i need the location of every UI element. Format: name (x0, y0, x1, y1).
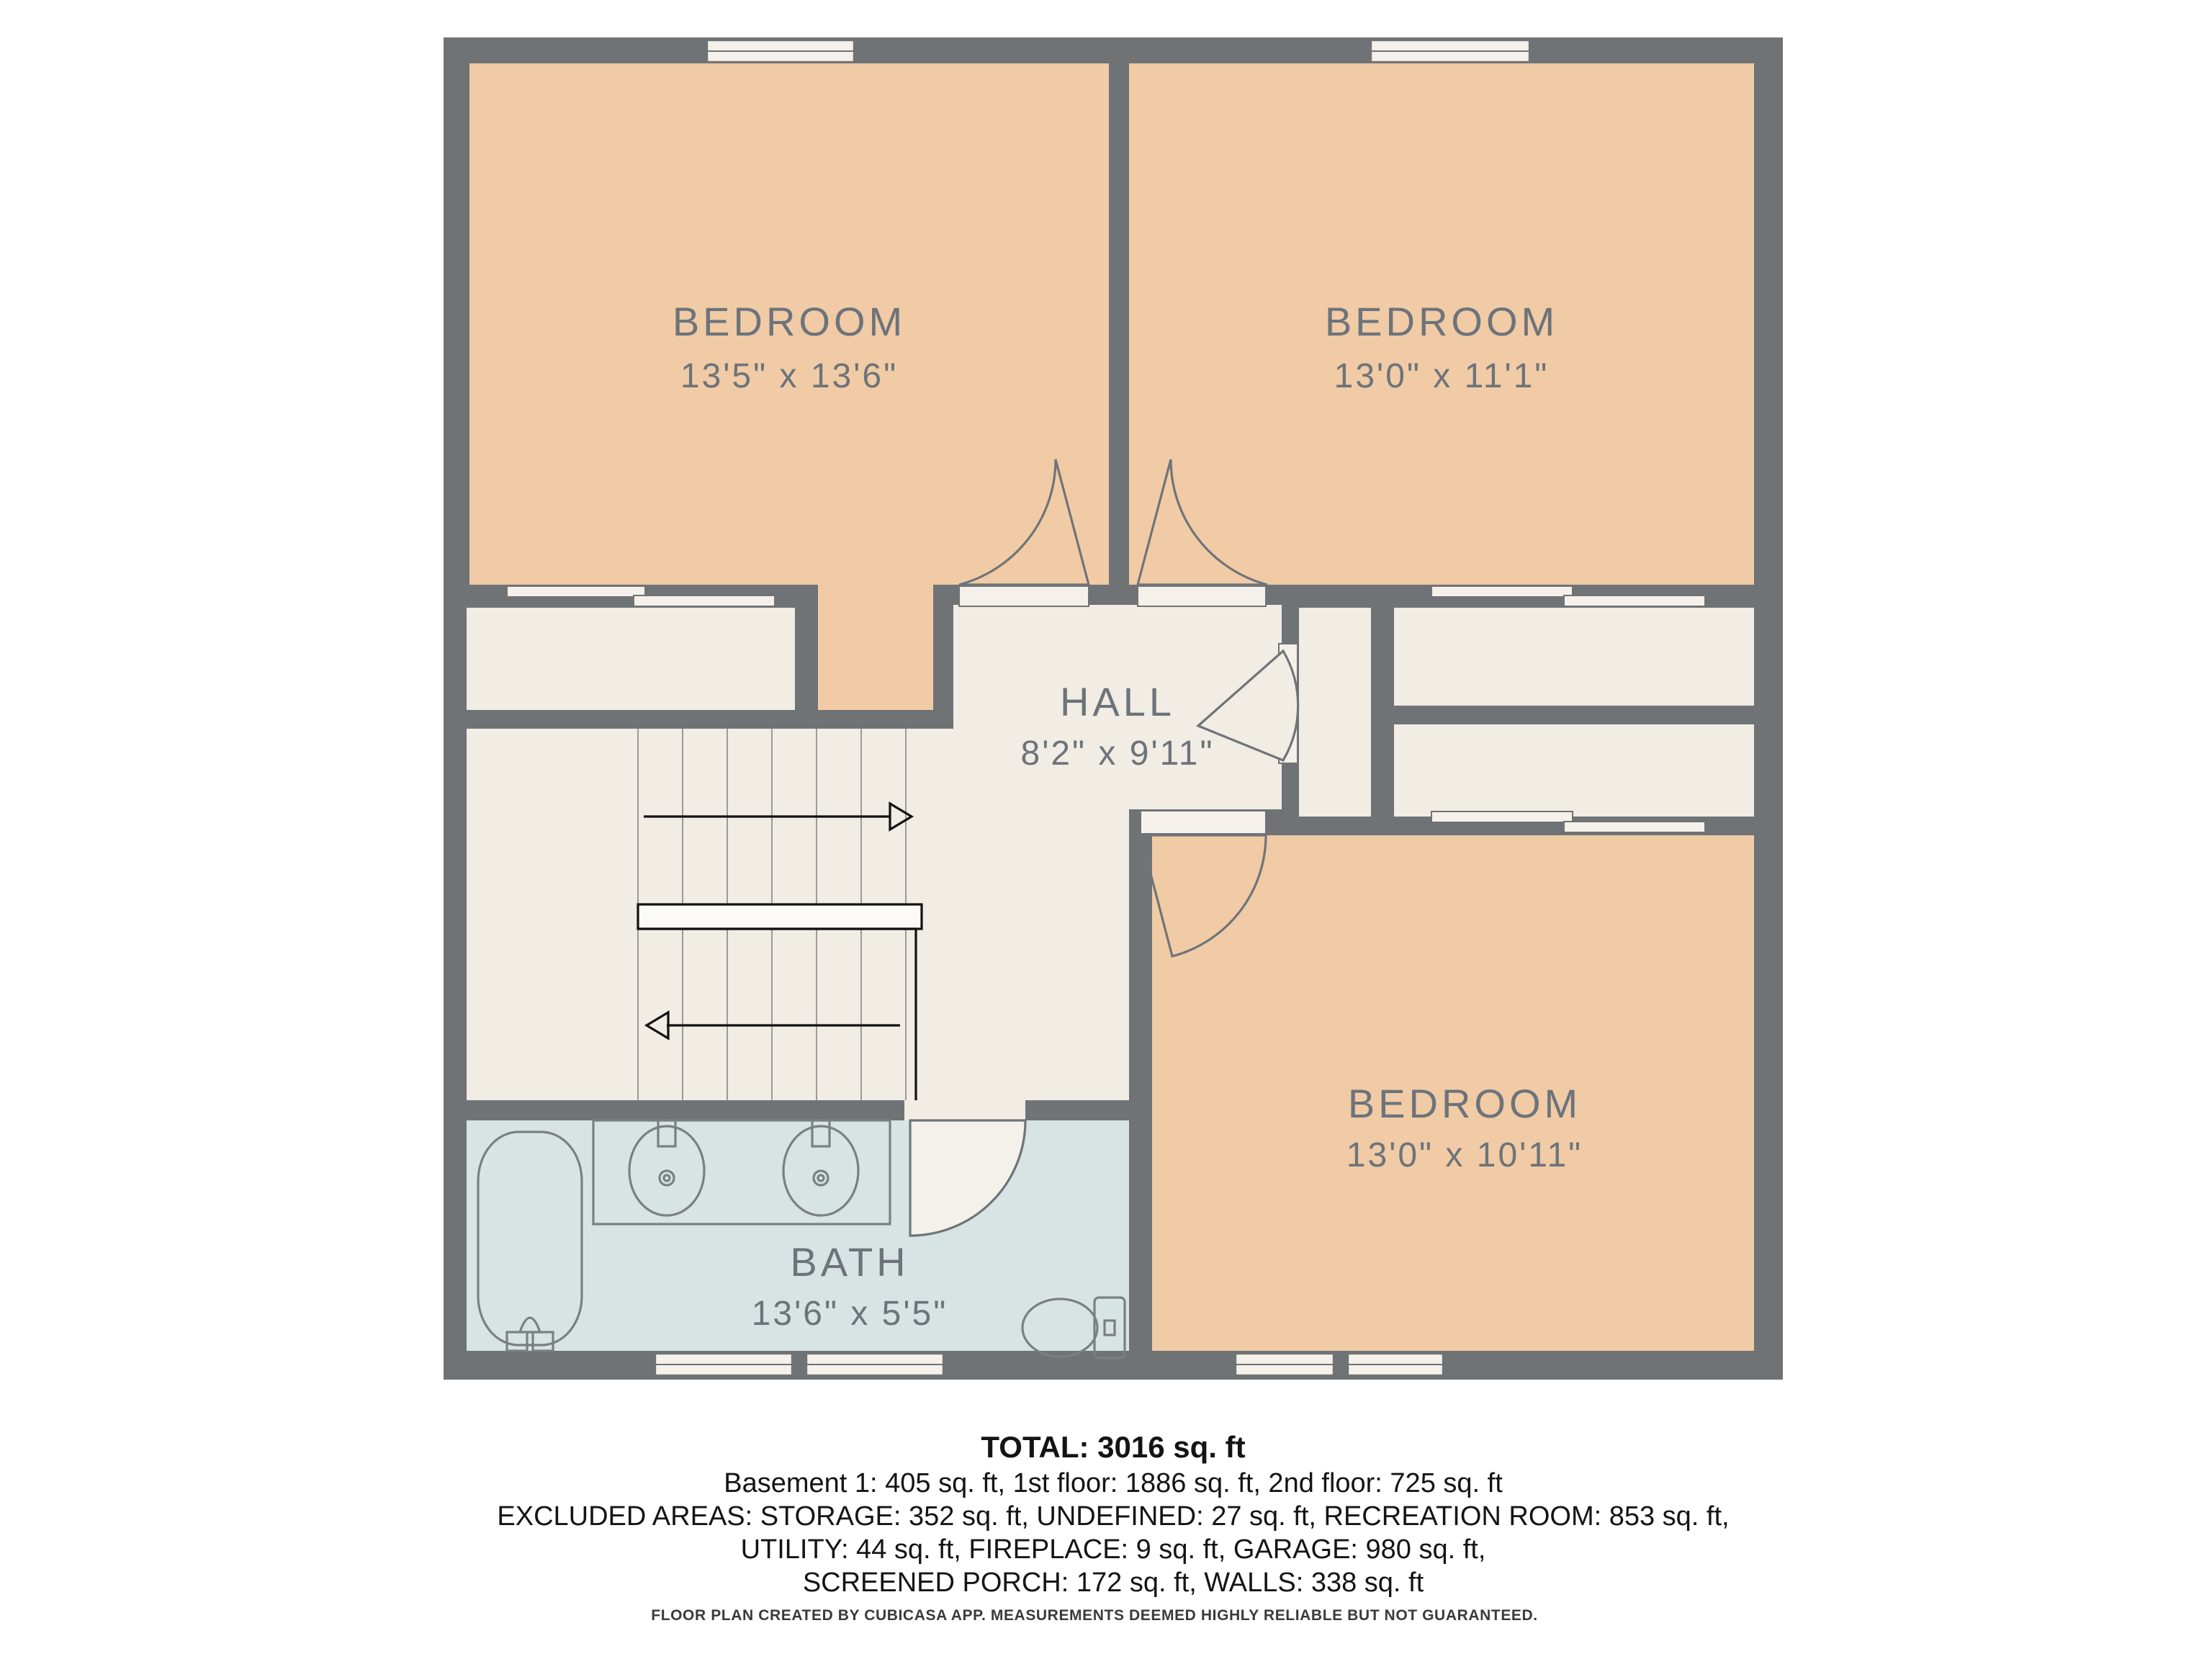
sliding-door-closet-left-b (634, 595, 775, 606)
floor-plan-page: BEDROOM 13'5" x 13'6" BEDROOM 13'0" x 11… (0, 0, 2212, 1659)
sliding-door-closet-upper-a (1431, 586, 1573, 597)
threshold-bedroom-top-left (959, 586, 1089, 606)
area-summary: TOTAL: 3016 sq. ft Basement 1: 405 sq. f… (497, 1430, 1729, 1624)
summary-excluded3: SCREENED PORCH: 172 sq. ft, WALLS: 338 s… (803, 1568, 1424, 1598)
room-closet-lower-right (1394, 724, 1754, 817)
label-bedroom-top-left: BEDROOM (673, 299, 906, 344)
stair-landing (638, 904, 922, 929)
threshold-bedroom-top-right (1138, 586, 1266, 606)
label-bedroom-top-right: BEDROOM (1325, 299, 1558, 344)
summary-excluded2: UTILITY: 44 sq. ft, FIREPLACE: 9 sq. ft,… (741, 1534, 1486, 1565)
dims-bedroom-top-right: 13'0" x 11'1" (1334, 357, 1550, 395)
summary-floors: Basement 1: 405 sq. ft, 1st floor: 1886 … (724, 1468, 1503, 1498)
dims-bath: 13'6" x 5'5" (752, 1295, 948, 1333)
bath-door-opening (904, 1100, 1025, 1120)
sliding-door-closet-upper-b (1564, 595, 1705, 606)
dims-bedroom-top-left: 13'5" x 13'6" (680, 357, 898, 395)
summary-excluded1: EXCLUDED AREAS: STORAGE: 352 sq. ft, UND… (497, 1501, 1729, 1532)
label-bedroom-bottom: BEDROOM (1348, 1081, 1581, 1126)
dims-hall: 8'2" x 9'11" (1021, 734, 1215, 773)
threshold-bedroom-bottom (1141, 811, 1266, 834)
summary-total: TOTAL: 3016 sq. ft (981, 1430, 1245, 1464)
label-bath: BATH (790, 1239, 909, 1285)
cubicasa-disclaimer: FLOOR PLAN CREATED BY CUBICASA APP. MEAS… (651, 1607, 1537, 1624)
sliding-door-closet-lower-b (1564, 822, 1705, 832)
room-closet-upper-right (1394, 608, 1754, 706)
dims-bedroom-bottom: 13'0" x 10'11" (1346, 1136, 1583, 1174)
sliding-door-closet-lower-a (1431, 811, 1573, 822)
label-hall: HALL (1060, 679, 1175, 724)
room-closet-left (467, 608, 795, 710)
room-linen-nook (1299, 608, 1371, 817)
sliding-door-closet-left-a (507, 586, 645, 597)
room-bedroom-top-left-nook (818, 585, 933, 710)
floor-plan-canvas: BEDROOM 13'5" x 13'6" BEDROOM 13'0" x 11… (0, 0, 2212, 1659)
